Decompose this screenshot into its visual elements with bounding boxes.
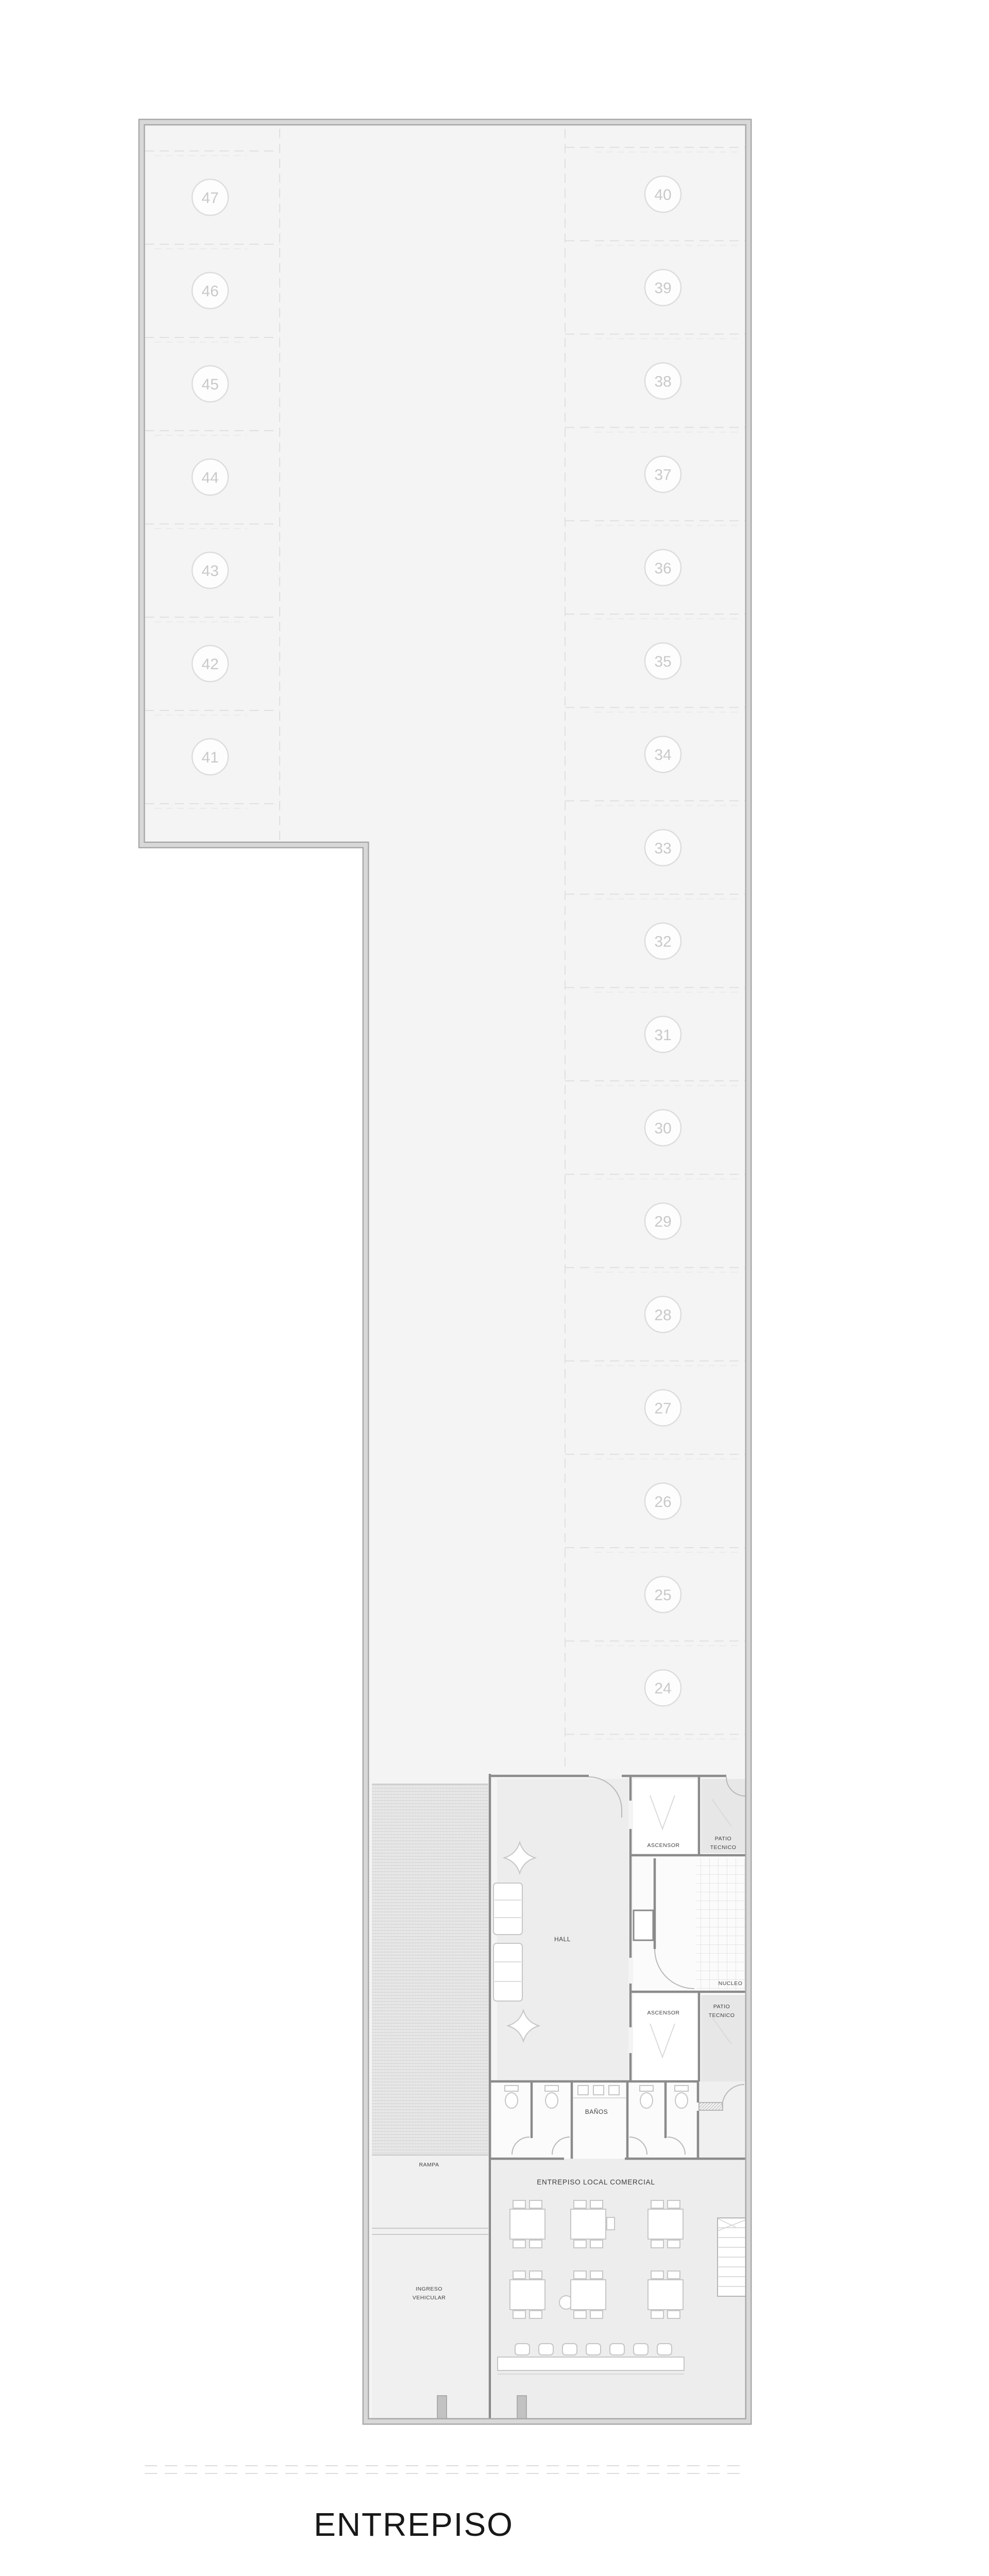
local-comercial-label: ENTREPISO LOCAL COMERCIAL — [537, 2178, 655, 2186]
chair — [668, 2311, 680, 2318]
chair — [530, 2200, 542, 2208]
chair — [590, 2271, 603, 2279]
parking-spot-number: 41 — [201, 749, 218, 766]
parking-spot-number: 32 — [654, 934, 671, 951]
toilet — [640, 2086, 653, 2108]
hall-label: HALL — [554, 1936, 571, 1943]
parking-spot-number: 43 — [201, 563, 218, 580]
patio-tecnico-lower-label-1: PATIO — [713, 2004, 730, 2010]
side-corridor — [698, 2081, 745, 2159]
parking-spot-number: 39 — [654, 280, 671, 297]
bar-stool — [610, 2344, 624, 2355]
table — [571, 2209, 606, 2239]
stair-treads — [696, 1858, 745, 1990]
bar-stool — [539, 2344, 553, 2355]
parking-spot-number: 37 — [654, 467, 671, 484]
restaurant-stair — [718, 2218, 749, 2296]
drawing-title: ENTREPISO — [314, 2506, 514, 2543]
nucleo-label: NUCLEO — [719, 1980, 743, 1987]
chair — [607, 2217, 615, 2230]
banos-label: BAÑOS — [585, 2108, 608, 2115]
bar-stool — [562, 2344, 577, 2355]
chair — [574, 2311, 586, 2318]
chair — [513, 2311, 525, 2318]
parking-spot-number: 30 — [654, 1120, 671, 1137]
ramp-strip — [372, 1784, 488, 2418]
parking-spot-number: 25 — [654, 1587, 671, 1604]
chair — [651, 2271, 663, 2279]
parking-spot-number: 40 — [654, 187, 671, 204]
bar-stool — [634, 2344, 648, 2355]
toilet — [545, 2086, 558, 2108]
chair — [513, 2200, 525, 2208]
parking-spot-number: 33 — [654, 840, 671, 857]
chair — [530, 2240, 542, 2248]
chair — [530, 2271, 542, 2279]
parking-spot-number: 46 — [201, 283, 218, 300]
column — [437, 2396, 447, 2420]
ramp-hatch — [372, 1784, 488, 2155]
bar-counter — [498, 2357, 684, 2370]
ingreso-vehicular-label-2: VEHICULAR — [413, 2295, 446, 2301]
parking-spot-number: 28 — [654, 1307, 671, 1324]
bar-stool — [657, 2344, 672, 2355]
elevator-lower-room — [633, 1995, 696, 2081]
corridor-door-leaf — [699, 2103, 723, 2110]
chair — [668, 2200, 680, 2208]
parking-spot-number: 31 — [654, 1027, 671, 1044]
table — [510, 2280, 545, 2310]
parking-spot-number: 44 — [201, 469, 218, 486]
sink — [593, 2086, 604, 2095]
chair — [590, 2200, 603, 2208]
sofa — [493, 1883, 522, 1935]
table — [648, 2209, 683, 2239]
chair — [530, 2311, 542, 2318]
patio-tecnico-upper-label-1: PATIO — [715, 1836, 731, 1842]
patio-tecnico-lower-label-2: TECNICO — [709, 2012, 735, 2019]
floor-plan-drawing: 47464544434241 4039383736353433323130292… — [0, 0, 989, 2576]
chair — [651, 2200, 663, 2208]
chair — [513, 2271, 525, 2279]
sofa — [493, 1943, 522, 2001]
parking-spot-number: 29 — [654, 1213, 671, 1230]
chair — [651, 2240, 663, 2248]
chair — [651, 2311, 663, 2318]
toilet — [505, 2086, 518, 2108]
parking-spot-number: 27 — [654, 1400, 671, 1417]
chair — [590, 2240, 603, 2248]
bar-stool — [515, 2344, 530, 2355]
toilet — [675, 2086, 688, 2108]
parking-spot-number: 47 — [201, 190, 218, 207]
parking-spot-number: 26 — [654, 1494, 671, 1511]
parking-spot-number: 42 — [201, 656, 218, 673]
chair — [513, 2240, 525, 2248]
ascensor-lower-label: ASCENSOR — [647, 2010, 680, 2016]
table — [648, 2280, 683, 2310]
column — [517, 2396, 526, 2420]
parking-spot-number: 38 — [654, 373, 671, 390]
chair — [668, 2240, 680, 2248]
chair — [574, 2200, 586, 2208]
parking-spot-number: 24 — [654, 1680, 671, 1697]
rampa-label: RAMPA — [419, 2162, 439, 2168]
chair — [590, 2311, 603, 2318]
bar-stools — [515, 2344, 672, 2355]
parking-spot-number: 45 — [201, 376, 218, 393]
table — [571, 2280, 606, 2310]
chair — [574, 2271, 586, 2279]
ascensor-upper-label: ASCENSOR — [647, 1842, 680, 1849]
ingreso-vehicular-label-1: INGRESO — [416, 2286, 442, 2292]
bar-stool — [586, 2344, 601, 2355]
parking-spot-number: 36 — [654, 560, 671, 577]
patio-tecnico-upper-room — [701, 1779, 745, 1853]
sink — [578, 2086, 588, 2095]
parking-spot-number: 34 — [654, 747, 671, 764]
patio-tecnico-upper-label-2: TECNICO — [710, 1844, 737, 1851]
chair — [668, 2271, 680, 2279]
chair — [574, 2240, 586, 2248]
parking-spot-number: 35 — [654, 653, 671, 670]
table — [510, 2209, 545, 2239]
sink — [609, 2086, 619, 2095]
